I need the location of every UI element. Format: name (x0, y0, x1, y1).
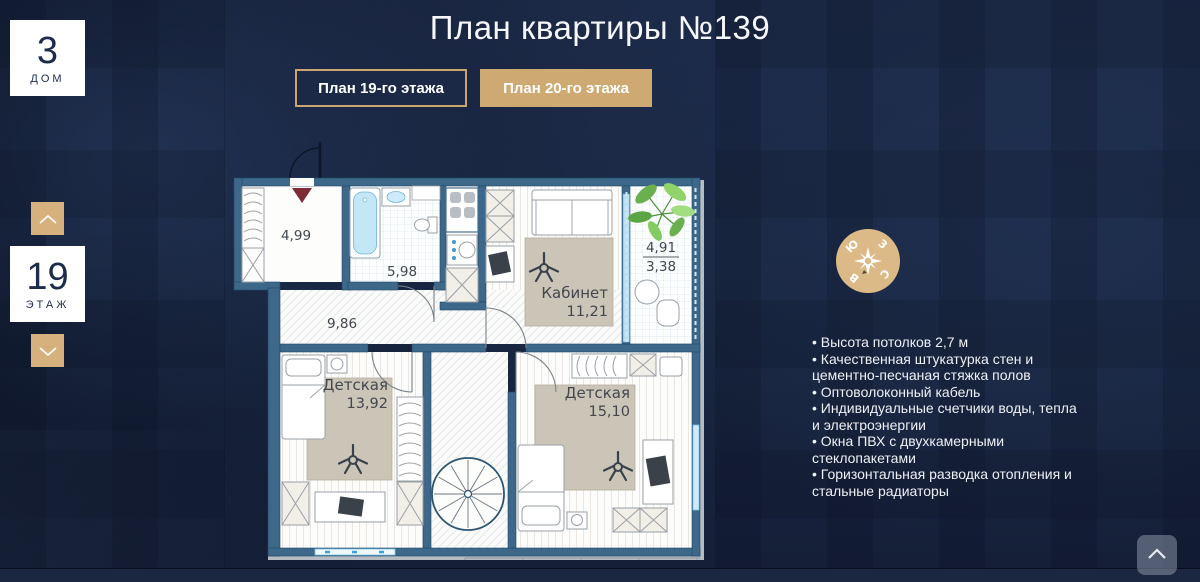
kids-room-1-name-label: Детская (323, 376, 388, 394)
scroll-to-top-button[interactable] (1137, 535, 1177, 575)
kids-room-2-bed (518, 445, 564, 531)
house-number: 3 (37, 31, 58, 71)
page-title: План квартиры №139 (0, 9, 1200, 47)
kids-room-1-area-label: 13,92 (346, 396, 388, 412)
kids-room-1-bed (282, 355, 325, 439)
kids-room-2-ac-unit (567, 512, 587, 529)
exterior-finish-right (700, 180, 704, 560)
kids-room-2-area-label: 15,10 (588, 404, 630, 420)
floor-plan: 4,99 5,98 9,86 Кабинет 11,21 4,91 3,38 Д… (230, 140, 712, 560)
corridor-area-label: 9,86 (327, 316, 357, 332)
kids-room-2-coat-rack (572, 354, 682, 378)
kids-room-2-wardrobe (613, 508, 667, 532)
office-sofa (532, 190, 612, 235)
bathtub (350, 188, 380, 258)
feature-item: Высота потолков 2,7 м (812, 334, 1078, 351)
bathroom-area-label: 5,98 (387, 264, 417, 280)
spiral-staircase (432, 458, 504, 530)
feature-item: Окна ПВХ с двухкамерными стеклопакетами (812, 433, 1078, 466)
floor-number: 19 (26, 257, 68, 297)
footer-band (0, 569, 1200, 582)
kids-room-2-desk (643, 440, 673, 504)
sink (382, 188, 410, 206)
entrance-outside-door-mark (290, 142, 320, 180)
tab-floor-19[interactable]: План 19-го этажа (295, 69, 467, 107)
apartment-features-list: Высота потолков 2,7 м Качественная штука… (812, 334, 1078, 499)
hall-area-label: 4,99 (281, 228, 311, 244)
balcony-area-total-label: 4,91 (646, 240, 676, 256)
compass-rose: Ю З С В (836, 229, 900, 293)
office-area-label: 11,21 (566, 304, 608, 320)
office-desk (486, 246, 514, 282)
bathroom-counter (412, 186, 440, 200)
house-label: ДОМ (30, 73, 64, 85)
feature-item: Индивидуальные счетчики воды, тепла и эл… (812, 400, 1078, 433)
floor-badge: 19 ЭТАЖ (10, 246, 85, 322)
kids-room-1-desk (315, 492, 385, 522)
balcony-area-reduced-label: 3,38 (646, 259, 676, 275)
floor-up-button[interactable] (31, 202, 64, 235)
hall-wardrobe (242, 188, 264, 282)
kitchenette-block (446, 188, 478, 232)
kids-room-2-name-label: Детская (565, 384, 630, 402)
chevron-up-icon (1146, 547, 1168, 563)
tab-floor-20[interactable]: План 20-го этажа (480, 69, 652, 107)
office-cabinets (486, 190, 514, 242)
feature-item: Оптоволоконный кабель (812, 384, 1078, 401)
chevron-down-icon (38, 345, 58, 357)
floor-label: ЭТАЖ (26, 299, 70, 311)
utility-cabinet (446, 268, 478, 302)
feature-item: Качественная штукатурка стен и цементно-… (812, 351, 1078, 384)
entrance-opening (290, 178, 314, 186)
office-name-label: Кабинет (541, 284, 608, 302)
feature-item: Горизонтальная разводка отопления и стал… (812, 466, 1078, 499)
tab-floor-19-label: План 19-го этажа (318, 80, 444, 97)
house-badge: 3 ДОМ (10, 20, 85, 96)
washing-machine (447, 235, 477, 265)
kids-room-1-ac-unit (327, 355, 347, 373)
floor-down-button[interactable] (31, 334, 64, 367)
tab-floor-20-label: План 20-го этажа (503, 80, 629, 97)
chevron-up-icon (38, 213, 58, 225)
